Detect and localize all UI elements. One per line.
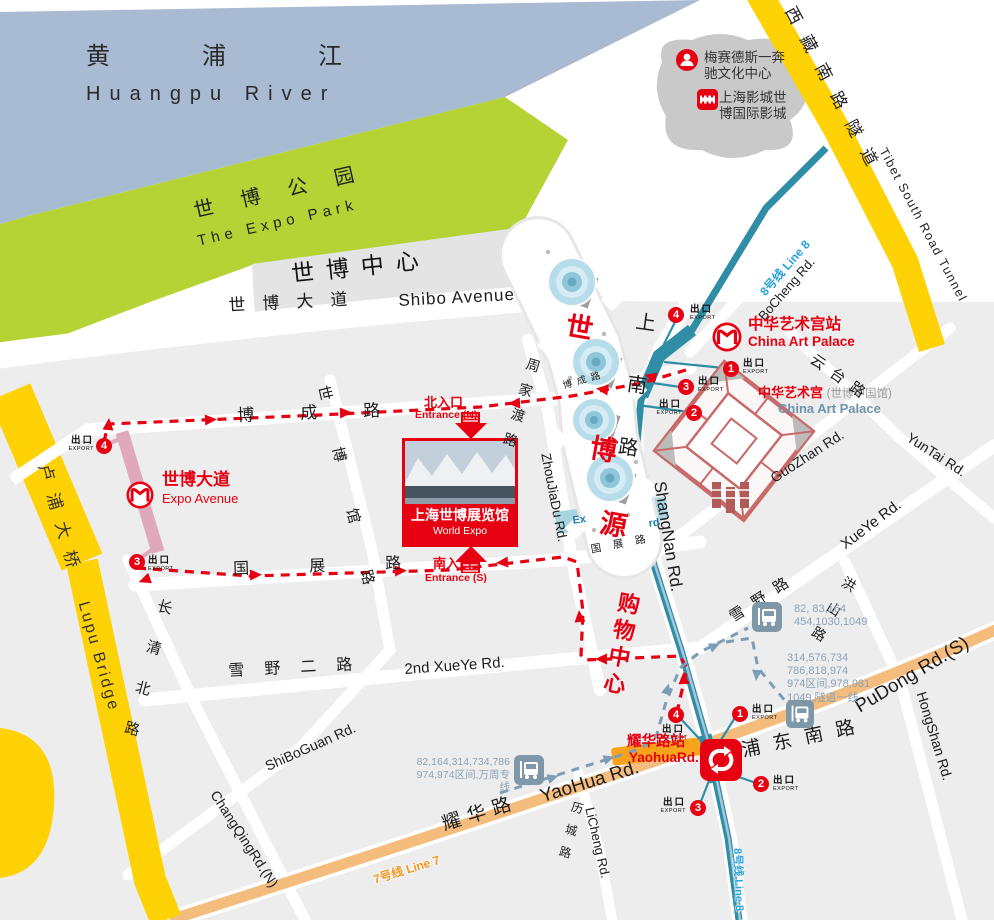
world-expo-label-en: World Expo <box>403 526 517 537</box>
cap-exit-2: 2 <box>686 405 702 421</box>
huangpu-river-label-en: Huangpu River <box>86 84 336 105</box>
mercedes-label-line1: 梅赛德斯一奔 <box>704 51 785 65</box>
ea-exit-3: 3 <box>129 554 145 570</box>
cap-station-label-cn: 中华艺术宫站 <box>748 317 841 333</box>
yh-exit-3-label: 出口EXPORT <box>656 798 686 814</box>
interchange-icon <box>700 739 742 781</box>
mercedes-label-line2: 驰文化中心 <box>704 67 772 81</box>
cinema-label-line1: 上海影城世 <box>719 91 787 105</box>
palace-label-cn: 中华艺术宫 <box>758 385 823 400</box>
bus-stop-3-routes: 82,164,314,734,786 974,974区间,万周专线 <box>408 756 510 794</box>
ea-exit-3-label: 出口EXPORT <box>148 556 174 572</box>
bus-stop-icon-3 <box>514 755 544 785</box>
yh-exit-4: 4 <box>668 707 684 723</box>
bus-stop-icon-2 <box>786 700 814 728</box>
axis-fragment-left: Ex <box>572 514 587 527</box>
yh-exit-1: 1 <box>732 706 748 722</box>
entrance-south-label-en: Entrance (S) <box>425 573 487 584</box>
ea-exit-4: 4 <box>96 438 112 454</box>
cap-exit-4-label: 出口EXPORT <box>690 305 716 321</box>
bus-stop-icon-1 <box>752 602 782 632</box>
person-icon <box>676 49 698 71</box>
expo-avenue-station-label-en: Expo Avenue <box>162 492 238 506</box>
ea-exit-4-label: 出口EXPORT <box>64 436 94 452</box>
entrance-north-label-en: Entrance (N) <box>415 410 477 421</box>
metro-logo-cap <box>712 322 742 352</box>
yaohua-station-label-en: YaohuaRd. <box>629 751 699 765</box>
expo-avenue-station-label-cn: 世博大道 <box>162 471 230 489</box>
bus-stop-2-routes: 314,576,734 786,818,974 974区间,978,981 10… <box>787 652 870 705</box>
cap-exit-1: 1 <box>723 361 739 377</box>
yh-exit-1-label: 出口EXPORT <box>752 705 778 721</box>
cap-exit-4: 4 <box>668 307 684 323</box>
metro-logo-expo-avenue <box>126 481 154 509</box>
yh-exit-3: 3 <box>690 800 706 816</box>
world-expo-label-cn: 上海世博展览馆 <box>403 508 517 523</box>
line8-label-bottom: 8号线 Line 8 <box>730 848 744 911</box>
yh-exit-2-label: 出口EXPORT <box>773 776 799 792</box>
cap-station-label-en: China Art Palace <box>748 335 855 349</box>
entrance-north-label-cn: 北入口 <box>424 396 463 410</box>
cap-exit-1-label: 出口EXPORT <box>743 359 769 375</box>
bus-stop-1-routes: 82, 83,164 454,1030,1049 <box>794 603 867 629</box>
yh-exit-2: 2 <box>753 776 769 792</box>
entrance-south-label-cn: 南入口 <box>433 557 472 571</box>
expo-area-map: 黄浦江 Huangpu River 世博公园 The Expo Park 世博中… <box>0 0 994 920</box>
cap-exit-2-label: 出口EXPORT <box>652 400 682 416</box>
axis-fragment-right: rd <box>648 517 660 530</box>
cap-exit-3: 3 <box>678 379 694 395</box>
cinema-label-line2: 博国际影城 <box>719 107 787 121</box>
cap-exit-3-label: 出口EXPORT <box>698 377 724 393</box>
film-icon <box>697 89 718 110</box>
huangpu-river-label-cn: 黄浦江 <box>86 44 434 69</box>
yaohua-station-label-cn: 耀华路站 <box>627 735 685 750</box>
